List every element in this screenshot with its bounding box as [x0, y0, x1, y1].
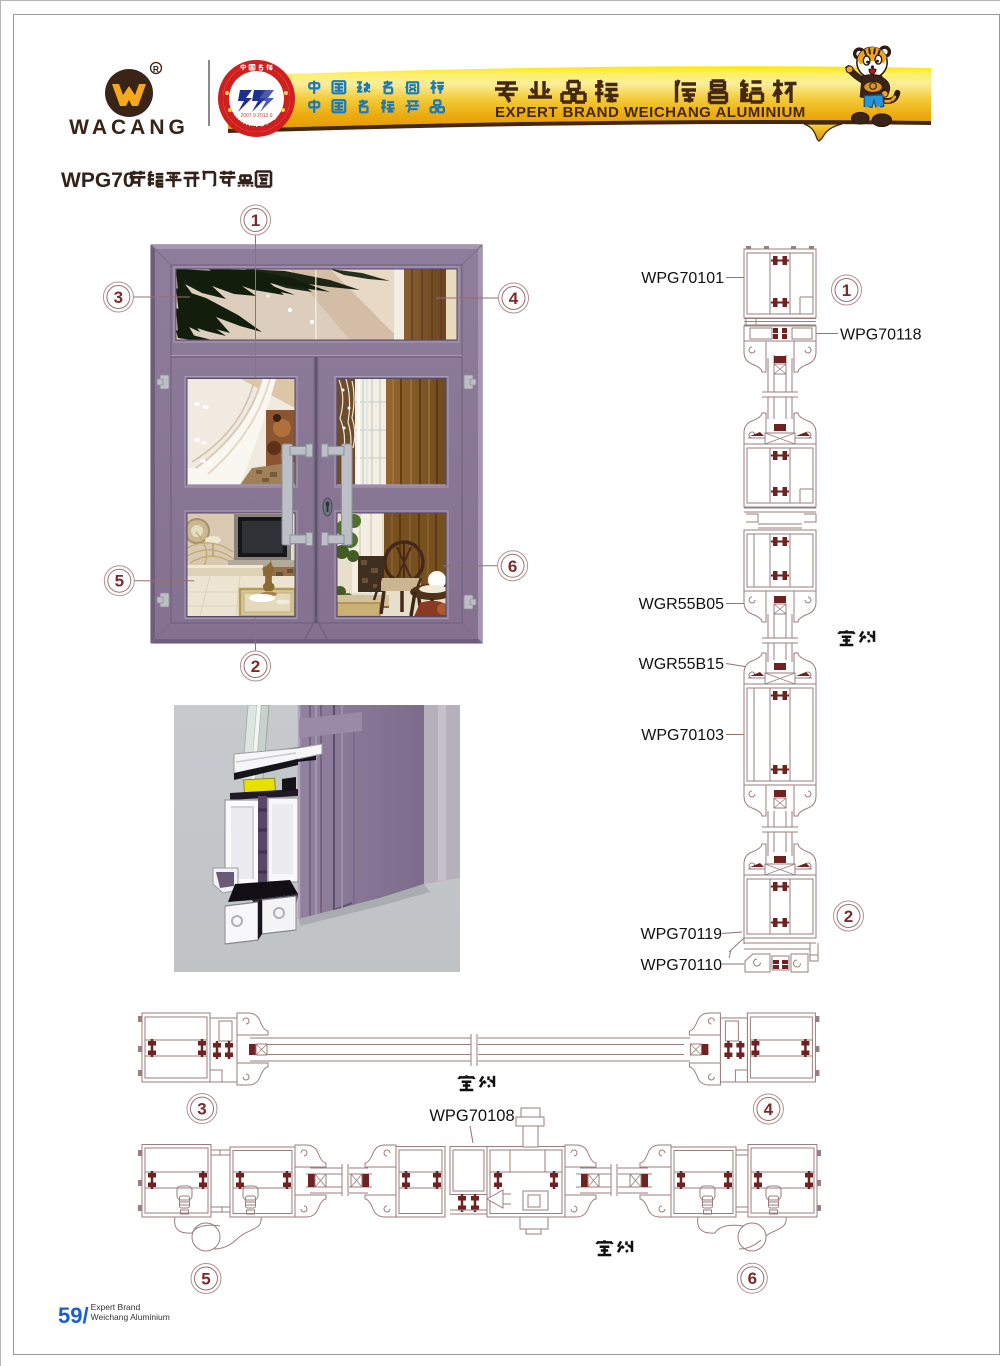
svg-text:3: 3 — [197, 1100, 206, 1119]
svg-text:WPG70: WPG70 — [61, 169, 135, 192]
svg-text:2: 2 — [844, 907, 853, 926]
svg-text:4: 4 — [509, 289, 519, 308]
svg-text:WPG70108: WPG70108 — [429, 1107, 514, 1125]
svg-text:5: 5 — [115, 572, 124, 591]
svg-text:2007.9 2012.9: 2007.9 2012.9 — [241, 113, 273, 119]
svg-text:1: 1 — [251, 211, 260, 230]
svg-text:3: 3 — [114, 288, 123, 307]
svg-text:2: 2 — [251, 657, 260, 676]
svg-text:WGR55B05: WGR55B05 — [639, 596, 724, 613]
svg-text:WGR55B15: WGR55B15 — [639, 656, 724, 673]
svg-text:4: 4 — [764, 1100, 774, 1119]
svg-text:WPG70118: WPG70118 — [840, 327, 922, 344]
svg-text:1: 1 — [842, 281, 851, 300]
svg-text:WPG70119: WPG70119 — [640, 926, 722, 943]
svg-text:6: 6 — [508, 557, 517, 576]
svg-text:5: 5 — [201, 1270, 210, 1289]
svg-text:6: 6 — [748, 1269, 757, 1288]
svg-text:WACANG: WACANG — [69, 116, 189, 139]
svg-text:WPG70103: WPG70103 — [641, 727, 724, 744]
svg-text:WPG70101: WPG70101 — [641, 270, 724, 287]
svg-text:WPG70110: WPG70110 — [640, 957, 722, 974]
svg-text:R: R — [153, 64, 159, 74]
